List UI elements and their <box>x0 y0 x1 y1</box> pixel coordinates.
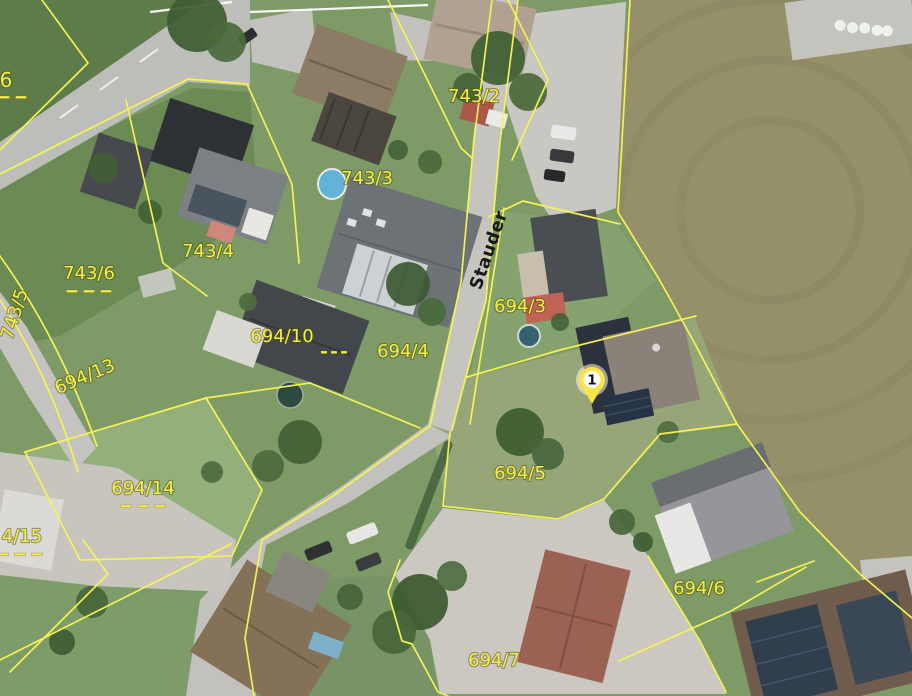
ownership-dash <box>341 351 347 354</box>
ownership-dash <box>121 505 132 508</box>
parcel-label-743-3: 743/3 <box>341 168 393 189</box>
ownership-dash <box>321 351 327 354</box>
marker-number: 1 <box>587 373 596 389</box>
ownership-dash <box>138 505 149 508</box>
ownership-dash <box>101 290 112 293</box>
ownership-dash <box>0 96 10 99</box>
parcel-label-743-2: 743/2 <box>448 86 500 107</box>
aerial-map-canvas[interactable]: 6743/2743/3743/4743/6743/5694/13694/144/… <box>0 0 912 696</box>
parcel-label-743-4: 743/4 <box>182 241 234 262</box>
ownership-dash <box>84 290 95 293</box>
ownership-dash <box>15 553 26 556</box>
parcel-label-694-6: 694/6 <box>673 578 725 599</box>
ownership-dash <box>16 96 27 99</box>
parcel-label-6: 6 <box>0 68 12 92</box>
parcel-label-694-4: 694/4 <box>377 341 429 362</box>
ownership-dash <box>155 505 166 508</box>
pool <box>518 325 540 347</box>
parcel-label-4-15: 4/15 <box>2 526 42 547</box>
parcel-label-694-14: 694/14 <box>111 478 174 499</box>
ownership-dash <box>331 351 337 354</box>
ownership-dash <box>32 553 43 556</box>
ownership-dash <box>67 290 78 293</box>
parcel-label-694-3: 694/3 <box>494 296 546 317</box>
ownership-dash <box>0 553 9 556</box>
parcel-label-694-10: 694/10 <box>250 326 313 347</box>
parcel-label-694-7: 694/7 <box>468 650 520 671</box>
parcel-label-694-5: 694/5 <box>494 463 546 484</box>
parcel-label-743-6: 743/6 <box>63 263 115 284</box>
map-viewport[interactable]: 6743/2743/3743/4743/6743/5694/13694/144/… <box>0 0 912 696</box>
